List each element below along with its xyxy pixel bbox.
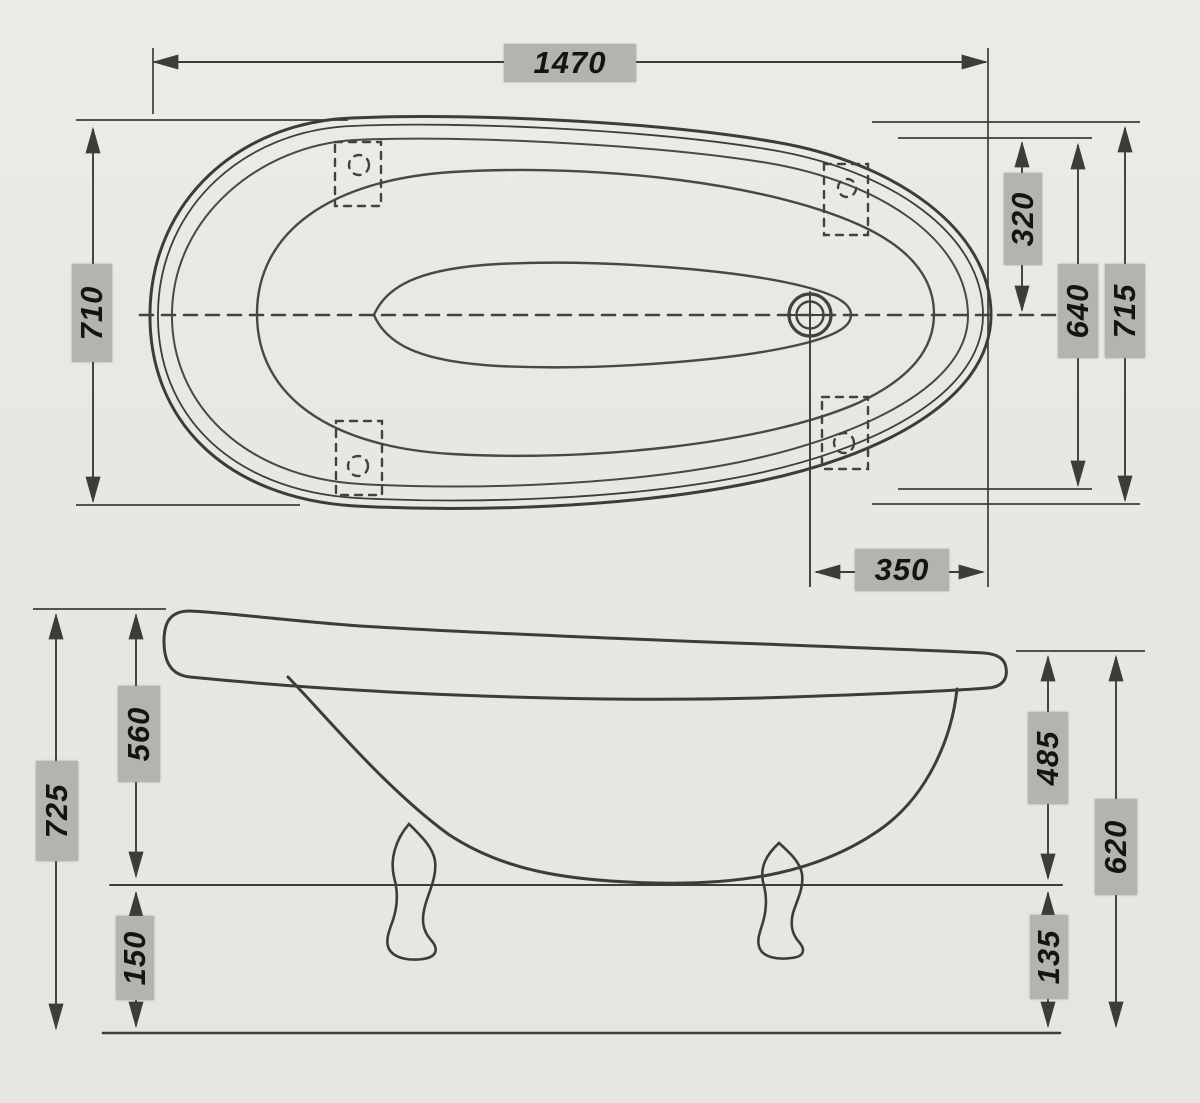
technical-drawing: 1470 710 320 640 715 350 725 560 150 485…: [0, 0, 1200, 1103]
dim-label-rim-inner-width: 640: [1058, 264, 1098, 358]
tub-rim-inner-edge: [172, 139, 968, 487]
tub-rim-profile: [164, 611, 1006, 699]
tub-outer-outline: [150, 117, 991, 509]
dim-label-center-to-rim-top: 320: [1004, 173, 1042, 265]
dim-label-overall-length: 1470: [504, 44, 636, 82]
side-view: [103, 611, 1062, 1033]
drawing-canvas: [0, 0, 1200, 1103]
dim-label-overall-height-back: 725: [36, 761, 78, 861]
claw-foot-right: [758, 843, 803, 959]
claw-foot-left: [387, 824, 435, 960]
dim-label-body-height-front: 485: [1028, 712, 1068, 804]
top-view-dimensions: [76, 48, 1140, 587]
dim-label-drain-to-end: 350: [855, 549, 949, 591]
dim-label-overall-height-front: 620: [1095, 799, 1137, 895]
dim-label-leg-height-front: 135: [1030, 915, 1068, 999]
dim-label-overall-width-right: 715: [1105, 264, 1145, 358]
dim-label-leg-height-back: 150: [116, 916, 154, 1000]
dim-label-overall-width-left: 710: [72, 264, 112, 362]
drain-symbol: [787, 292, 833, 338]
side-view-dimensions: [33, 609, 1145, 1028]
tub-outer-outline-inner: [158, 125, 983, 501]
top-view: [140, 117, 1066, 509]
tub-body-profile: [288, 677, 957, 883]
dim-label-body-height-back: 560: [118, 686, 160, 782]
